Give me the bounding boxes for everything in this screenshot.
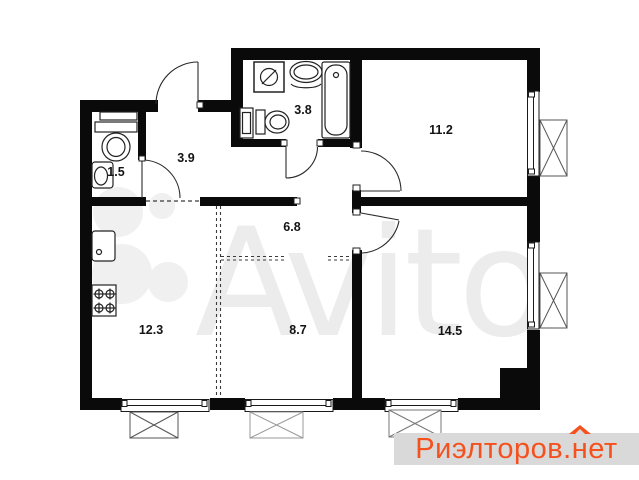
avito-watermark-text: Avito xyxy=(195,197,545,371)
bathroom-cabinet-inner xyxy=(243,113,251,134)
bedroom-door xyxy=(361,151,401,191)
label-bedroom2: 14.5 xyxy=(438,324,462,338)
label-hallway: 3.9 xyxy=(177,151,194,165)
kitchen-sink-drain xyxy=(97,250,102,255)
label-living: 8.7 xyxy=(289,323,306,337)
house-roof-icon xyxy=(569,425,591,434)
wc-toilet-bowl-inner xyxy=(107,138,125,157)
x-box xyxy=(250,412,303,438)
label-wc: 1.5 xyxy=(107,165,124,179)
entrance-door xyxy=(156,62,198,104)
label-kitchen: 12.3 xyxy=(139,323,163,337)
bathroom-toilet-tank xyxy=(256,110,265,134)
vent-shaft xyxy=(500,368,527,398)
window-living xyxy=(245,400,333,412)
kitchen-sink xyxy=(92,231,115,261)
wc-door xyxy=(142,160,180,198)
realtors-logo-house-letter: н xyxy=(572,433,589,465)
bathtub-drain xyxy=(334,73,339,78)
realtors-logo-text2: ет xyxy=(588,433,617,465)
avito-logo-circle xyxy=(149,193,175,219)
wc-toilet-tank xyxy=(95,122,137,132)
realtors-logo-n: н xyxy=(572,433,589,465)
bathroom-sink-edge xyxy=(291,84,321,88)
x-box xyxy=(540,120,567,176)
bathroom-sink-basin xyxy=(294,65,318,79)
x-box xyxy=(130,412,178,438)
bathroom-door xyxy=(286,147,318,178)
window-bedroom2-east xyxy=(528,242,540,329)
realtors-logo: Риэлторов.нет xyxy=(394,433,639,465)
stove xyxy=(92,285,116,316)
wc-sink-basin xyxy=(95,167,108,185)
bathroom-toilet-bowl-inner xyxy=(270,115,286,129)
avito-logo-circle xyxy=(93,187,143,237)
label-bedroom: 11.2 xyxy=(429,123,453,137)
realtors-logo-text: Риэлторов. xyxy=(415,433,571,465)
avito-logo-circle xyxy=(148,262,188,302)
wc-shelf xyxy=(100,112,137,120)
floorplan-svg: Avito xyxy=(0,0,639,480)
label-bathroom: 3.8 xyxy=(294,103,311,117)
avito-watermark: Avito xyxy=(92,187,545,371)
window-kitchen xyxy=(121,400,209,412)
x-box xyxy=(540,273,567,328)
floorplan-image: Avito xyxy=(0,0,639,480)
window-bedroom-east xyxy=(528,91,540,176)
label-corridor: 6.8 xyxy=(283,220,300,234)
